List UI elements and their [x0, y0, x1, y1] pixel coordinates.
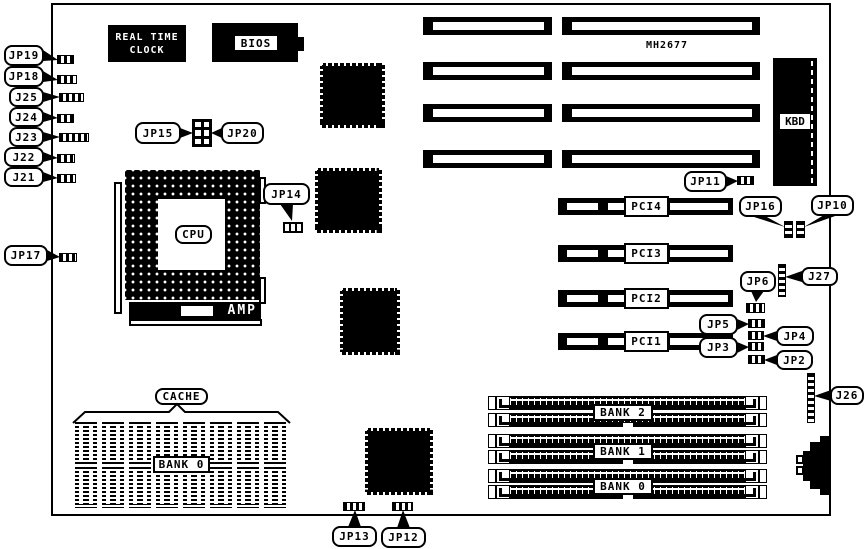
pci1-label: PCI1: [624, 331, 669, 352]
callout-jp20: JP20: [221, 122, 264, 144]
bank0-label: BANK 0: [593, 478, 653, 495]
pci-slot-pci4: PCI4: [558, 198, 733, 215]
motherboard-diagram: JP19 JP18 J25 J24 J23 J22 J21 JP17 REAL …: [0, 0, 868, 549]
socket-side-bar-bottom-right: [259, 277, 266, 304]
qfp-chip-4: [365, 428, 433, 495]
callout-jp5: JP5: [699, 314, 738, 335]
amp-brand-text: AMP: [228, 303, 257, 318]
isa-slot-4-left: [423, 150, 552, 168]
jumper-jp11: [737, 176, 754, 185]
callout-jp15: JP15: [135, 122, 181, 144]
bios-chip: BIOS: [212, 23, 298, 62]
callout-j25: J25: [9, 87, 44, 107]
board-model-text: MH2677: [628, 40, 706, 51]
jumper-jp12: [392, 502, 413, 511]
jumper-jp4: [748, 331, 764, 340]
callout-jp19: JP19: [4, 45, 44, 66]
jumper-jp19: [57, 55, 74, 64]
pci-slot-pci2: PCI2: [558, 290, 733, 307]
callout-jp4: JP4: [776, 326, 814, 346]
kbd-label: KBD: [780, 114, 810, 129]
isa-slot-3-left: [423, 104, 552, 122]
pci-slot-pci3: PCI3: [558, 245, 733, 262]
jumper-jp17: [59, 253, 77, 262]
callout-jp6: JP6: [740, 271, 776, 292]
jumper-jp13: [343, 502, 365, 511]
cache-chip: [237, 422, 259, 464]
socket-base-slot: [181, 306, 213, 316]
pci3-label: PCI3: [624, 243, 669, 264]
cache-bank-label: BANK 0: [153, 456, 210, 473]
jumper-jp6: [746, 303, 765, 313]
isa-slot-3-right: [562, 104, 760, 122]
cache-chip: [210, 422, 232, 464]
socket-side-bar-left: [114, 182, 122, 314]
callout-jp14: JP14: [263, 183, 310, 205]
jumper-j21: [57, 174, 76, 183]
jumper-block-jp15-jp20: [192, 119, 212, 147]
callout-j26: J26: [830, 386, 864, 405]
bios-label: BIOS: [235, 36, 277, 50]
jumper-j24: [57, 114, 74, 123]
jumper-jp3: [748, 342, 764, 351]
cache-chip: [156, 467, 178, 508]
callout-j24: J24: [9, 107, 44, 127]
keyboard-connector: KBD: [773, 58, 817, 186]
jumper-jp5: [748, 319, 765, 328]
cache-chip: [102, 422, 124, 464]
callout-jp12: JP12: [381, 527, 426, 548]
cache-chip: [102, 467, 124, 508]
qfp-chip-1: [320, 63, 385, 128]
corner-connector-pin-2: [796, 466, 804, 475]
socket-base-bar: [129, 319, 262, 326]
bank1-label: BANK 1: [593, 443, 653, 460]
cpu-label: CPU: [175, 225, 212, 244]
corner-connector-pin-1: [796, 455, 804, 464]
corner-connector-nose: [803, 451, 810, 481]
callout-jp2: JP2: [776, 350, 813, 370]
rtc-chip: REAL TIME CLOCK: [108, 25, 186, 62]
cache-chip: [129, 422, 151, 464]
jumper-j23: [59, 133, 89, 142]
cache-chip: [129, 467, 151, 508]
callout-jp18: JP18: [4, 66, 44, 87]
callout-j23: J23: [9, 127, 44, 147]
callout-jp17: JP17: [4, 245, 48, 266]
bank2-label: BANK 2: [593, 404, 653, 421]
isa-slot-1-right: [562, 17, 760, 35]
cache-chip: [75, 422, 97, 464]
callout-jp11: JP11: [684, 171, 727, 192]
jumper-j25: [59, 93, 84, 102]
socket-base: AMP: [129, 302, 261, 319]
callout-jp3: JP3: [699, 337, 738, 358]
jumper-jp14: [283, 222, 303, 233]
isa-slot-1-left: [423, 17, 552, 35]
cache-chip: [264, 422, 286, 464]
jumper-jp18: [57, 75, 77, 84]
bios-chip-notch: [298, 37, 304, 51]
callout-jp10: JP10: [811, 195, 854, 216]
isa-slot-2-right: [562, 62, 760, 80]
callout-j27: J27: [801, 267, 838, 286]
jumper-j27: [778, 264, 786, 297]
pci2-label: PCI2: [624, 288, 669, 309]
rtc-label-line1: REAL TIME: [115, 31, 178, 44]
jumper-jp2: [748, 355, 765, 364]
cache-chip: [210, 467, 232, 508]
qfp-chip-2: [315, 168, 382, 233]
cache-chip: [237, 467, 259, 508]
corner-connector: [820, 436, 831, 495]
jumper-j26: [807, 373, 815, 423]
callout-jp16: JP16: [739, 196, 782, 217]
callout-j22: J22: [4, 147, 44, 167]
isa-slot-2-left: [423, 62, 552, 80]
rtc-label-line2: CLOCK: [129, 44, 164, 57]
cache-label: CACHE: [155, 388, 208, 405]
qfp-chip-3: [340, 288, 400, 355]
isa-slot-4-right: [562, 150, 760, 168]
jumper-jp10: [796, 221, 805, 238]
callout-j21: J21: [4, 167, 44, 187]
cache-chip: [183, 467, 205, 508]
callout-jp13: JP13: [332, 526, 377, 547]
corner-connector-step: [810, 442, 820, 489]
cache-chip: [75, 467, 97, 508]
jumper-j22: [57, 154, 75, 163]
cache-chip: [264, 467, 286, 508]
jumper-jp16: [784, 221, 793, 238]
pci4-label: PCI4: [624, 196, 669, 217]
